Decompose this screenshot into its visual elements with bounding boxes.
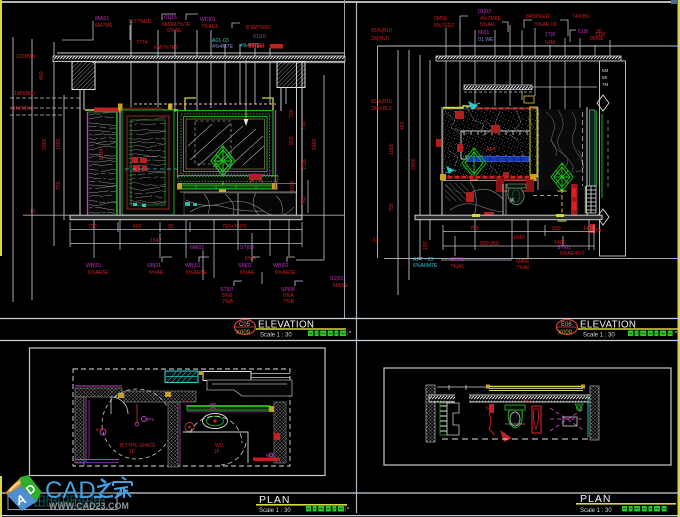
svg-text:-10: -10 bbox=[28, 209, 36, 215]
svg-text:9M6M: 9M6M bbox=[248, 44, 265, 50]
svg-text:ST|01: ST|01 bbox=[557, 245, 571, 251]
svg-text:ST|03: ST|03 bbox=[240, 245, 254, 251]
svg-text:1M5(BU): 1M5(BU) bbox=[14, 91, 35, 97]
svg-text:5%AE 00: 5%AE 00 bbox=[535, 22, 557, 28]
svg-text:1900: 1900 bbox=[56, 138, 62, 150]
svg-text:1643: 1643 bbox=[513, 235, 525, 241]
svg-text:750: 750 bbox=[56, 181, 62, 190]
svg-text:6%AE4%7: 6%AE4%7 bbox=[560, 251, 585, 257]
svg-text:1900: 1900 bbox=[389, 143, 395, 155]
svg-text:8%7ED2: 8%7ED2 bbox=[434, 23, 455, 29]
svg-text:ST|01: ST|01 bbox=[450, 257, 464, 263]
svg-text:1F: 1F bbox=[129, 449, 135, 455]
svg-text:750+70|70: 750+70|70 bbox=[222, 224, 247, 230]
svg-text:7%A6: 7%A6 bbox=[450, 264, 464, 270]
svg-text:Scale 1 : 30: Scale 1 : 30 bbox=[583, 333, 615, 339]
svg-text:01|15: 01|15 bbox=[164, 15, 177, 21]
svg-text:7%AE6: 7%AE6 bbox=[201, 24, 218, 30]
svg-text:5%AE: 5%AE bbox=[167, 28, 182, 34]
svg-text:7%6: 7%6 bbox=[522, 399, 532, 405]
svg-text:7%B: 7%B bbox=[222, 299, 233, 305]
svg-text:WB|02: WB|02 bbox=[273, 263, 289, 269]
svg-text:6M7%7E2: 6M7%7E2 bbox=[154, 45, 178, 51]
svg-text:750: 750 bbox=[389, 203, 395, 212]
svg-text:M|01: M|01 bbox=[478, 30, 490, 36]
svg-text:1577%ED: 1577%ED bbox=[128, 19, 152, 25]
svg-text:1200: 1200 bbox=[290, 180, 296, 192]
svg-text:7%B: 7%B bbox=[283, 299, 294, 305]
svg-text:6%AE: 6%AE bbox=[149, 270, 164, 276]
svg-text:750: 750 bbox=[88, 224, 97, 230]
svg-text:6M|01: 6M|01 bbox=[190, 245, 204, 251]
svg-text:6M5E: 6M5E bbox=[434, 16, 448, 22]
svg-text:950 950: 950 950 bbox=[480, 241, 499, 247]
svg-text:450: 450 bbox=[39, 71, 45, 80]
svg-text:6E: 6E bbox=[602, 75, 608, 80]
svg-text:2400: 2400 bbox=[42, 138, 48, 150]
svg-text:6M7M6: 6M7M6 bbox=[95, 23, 112, 29]
svg-text:CAD: CAD bbox=[45, 477, 96, 504]
svg-text:900: 900 bbox=[289, 136, 295, 145]
svg-text:01|10: 01|10 bbox=[253, 34, 266, 40]
svg-text:S1|01: S1|01 bbox=[330, 276, 344, 282]
svg-text:600: 600 bbox=[133, 224, 142, 230]
svg-text:JP1: JP1 bbox=[146, 417, 155, 423]
svg-text:Scale 1 : 30: Scale 1 : 30 bbox=[580, 508, 612, 514]
svg-text:-10: -10 bbox=[371, 238, 379, 244]
svg-text:6%AE6E: 6%AE6E bbox=[88, 270, 109, 276]
svg-text:WD|01: WD|01 bbox=[200, 17, 216, 23]
svg-text:Scale 1 : 30: Scale 1 : 30 bbox=[260, 333, 292, 339]
svg-text:65%(BU): 65%(BU) bbox=[371, 99, 392, 105]
svg-text:B TYPE SPACE: B TYPE SPACE bbox=[120, 443, 156, 449]
svg-text:64M: 64M bbox=[545, 40, 555, 46]
svg-text:7%A6: 7%A6 bbox=[516, 265, 530, 271]
svg-text:74%B9: 74%B9 bbox=[572, 14, 589, 20]
svg-text:750: 750 bbox=[302, 196, 308, 205]
svg-text:6%AE6E: 6%AE6E bbox=[186, 270, 207, 276]
svg-text:6M|6E: 6M|6E bbox=[333, 283, 348, 289]
svg-text:5%AE: 5%AE bbox=[480, 22, 495, 28]
svg-text:1500: 1500 bbox=[302, 158, 308, 170]
svg-text:AFT: AFT bbox=[486, 147, 497, 153]
svg-text:950: 950 bbox=[552, 226, 561, 232]
svg-text:2M0(BU): 2M0(BU) bbox=[371, 106, 392, 112]
svg-text:27|8: 27|8 bbox=[545, 32, 555, 38]
svg-text:Scale 1 : 30: Scale 1 : 30 bbox=[259, 508, 291, 514]
svg-text:64: 64 bbox=[596, 228, 602, 234]
svg-text:64: 64 bbox=[486, 406, 492, 412]
svg-text:X009: X009 bbox=[558, 330, 573, 336]
svg-text:8459%ED: 8459%ED bbox=[526, 14, 550, 20]
svg-text:90: 90 bbox=[596, 29, 602, 35]
svg-text:01 WE: 01 WE bbox=[478, 37, 494, 43]
svg-text:750: 750 bbox=[470, 226, 479, 232]
svg-text:X009: X009 bbox=[236, 330, 251, 336]
svg-text:C05: C05 bbox=[239, 322, 251, 328]
svg-text:6%A6M7E: 6%A6M7E bbox=[413, 263, 438, 269]
svg-text:1M0(BU): 1M0(BU) bbox=[13, 106, 34, 112]
svg-text:SB|01: SB|01 bbox=[147, 263, 161, 269]
svg-text:450: 450 bbox=[400, 121, 406, 130]
svg-text:E06: E06 bbox=[561, 322, 572, 328]
svg-text:65%(BU): 65%(BU) bbox=[371, 28, 392, 34]
svg-text:140: 140 bbox=[583, 226, 592, 232]
svg-text:2400: 2400 bbox=[411, 158, 417, 170]
svg-text:2M(BU): 2M(BU) bbox=[371, 36, 389, 42]
svg-text:90: 90 bbox=[168, 224, 174, 230]
svg-text:150: 150 bbox=[423, 241, 429, 250]
svg-text:100(BU): 100(BU) bbox=[16, 54, 36, 60]
svg-text:7M: 7M bbox=[602, 82, 609, 87]
svg-text:WB|01: WB|01 bbox=[86, 263, 102, 269]
svg-text:700: 700 bbox=[289, 109, 295, 118]
svg-text:6%AE: 6%AE bbox=[240, 270, 255, 276]
svg-text:51|8: 51|8 bbox=[578, 29, 588, 35]
svg-text:01|03: 01|03 bbox=[478, 9, 491, 15]
svg-text:WB|01: WB|01 bbox=[185, 263, 201, 269]
svg-text:6766: 6766 bbox=[99, 149, 105, 160]
svg-text:2400: 2400 bbox=[312, 138, 318, 150]
svg-text:W2: W2 bbox=[266, 453, 274, 459]
svg-text:8M|01: 8M|01 bbox=[95, 16, 109, 22]
svg-text:7774: 7774 bbox=[136, 40, 148, 46]
svg-text:6%: 6% bbox=[96, 427, 104, 433]
svg-text:6%AE6E: 6%AE6E bbox=[275, 270, 296, 276]
svg-text:8 5M7M60: 8 5M7M60 bbox=[246, 25, 271, 31]
svg-text:4%4M7E: 4%4M7E bbox=[212, 44, 234, 50]
svg-text:1F: 1F bbox=[214, 449, 220, 455]
svg-text:5M: 5M bbox=[602, 68, 609, 73]
svg-text:700: 700 bbox=[301, 121, 307, 130]
svg-text:SB|02: SB|02 bbox=[238, 263, 252, 269]
